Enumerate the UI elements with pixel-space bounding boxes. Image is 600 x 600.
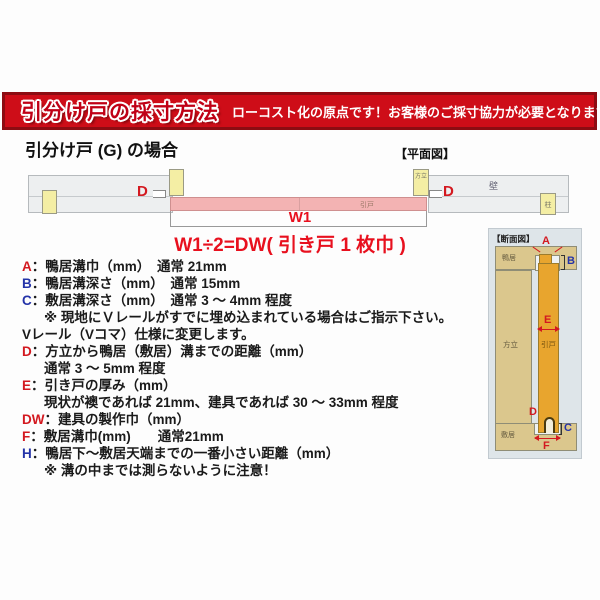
w1-dimension-line [170, 226, 427, 227]
left-end-post [42, 190, 57, 214]
measure-row: 通常 3 ～ 5mm 程度 [22, 360, 492, 377]
measure-text: ：敷居溝深さ（mm） 通常 3 ～ 4mm 程度 [32, 293, 292, 308]
measure-key: B [22, 276, 32, 291]
measure-text: ※ 溝の中までは測らないように注意！ [44, 463, 277, 478]
measure-text: 通常 3 ～ 5mm 程度 [44, 361, 166, 376]
hodate-column [495, 270, 532, 430]
measure-key: C [22, 293, 32, 308]
measure-row: C：敷居溝深さ（mm） 通常 3 ～ 4mm 程度 [22, 292, 492, 309]
right-pillar-post: 柱 [540, 193, 556, 215]
measure-key: E [22, 378, 31, 393]
banner-title: 引分け戸の採寸方法 [21, 96, 219, 126]
w1-formula: W1÷2=DW( 引き戸 1 枚巾 ) [120, 230, 460, 257]
page-subtitle: 引分け戸 (G) の場合 [25, 136, 178, 161]
measure-text: ：鴨居下～敷居天端までの一番小さい距離（mm） [32, 446, 340, 461]
b-dimension-label: B [567, 256, 575, 267]
d-dimension-label-right: D [443, 184, 454, 199]
d-dimension-label-left: D [137, 184, 148, 199]
measure-row: F：敷居溝巾(mm) 通常21mm [22, 428, 492, 445]
w1-tick-right [426, 211, 427, 227]
a-dimension-label: A [542, 236, 550, 247]
measure-key: A [22, 259, 32, 274]
kamoi-label: 鴨居 [502, 253, 516, 263]
measure-row: E：引き戸の厚み（mm） [22, 377, 492, 394]
measure-list: A：鴨居溝巾（mm） 通常 21mmB：鴨居溝深さ（mm） 通常 15mmC：敷… [22, 258, 492, 479]
measure-key: H [22, 446, 32, 461]
f-dimension-label: F [543, 441, 550, 452]
d-gap-bracket-right [429, 190, 442, 198]
measure-row: Vレール（Vコマ）仕様に変更します。 [22, 326, 492, 343]
c-dimension-label: C [564, 423, 572, 434]
measure-row: D：方立から鴨居（敷居）溝までの距離（mm） [22, 343, 492, 360]
f-width-arrow [535, 438, 560, 439]
d-gap-bracket-left [153, 190, 166, 198]
measure-text: ：建具の製作巾（mm） [45, 412, 191, 427]
measure-text: ：鴨居溝深さ（mm） 通常 15mm [32, 276, 241, 291]
measure-row: A：鴨居溝巾（mm） 通常 21mm [22, 258, 492, 275]
d-dimension-label-section: D [529, 407, 537, 418]
measure-text: ：敷居溝巾(mm) 通常21mm [30, 429, 224, 444]
shikii-label: 敷居 [501, 430, 515, 440]
measure-row: 現状が襖であれば 21mm、建具であれば 30 ～ 33mm 程度 [22, 394, 492, 411]
measure-row: H：鴨居下～敷居天端までの一番小さい距離（mm） [22, 445, 492, 462]
plan-view-caption: 【平面図】 [395, 145, 455, 162]
measure-key: D [22, 344, 32, 359]
e-width-arrow [538, 329, 559, 330]
right-hodate-post: 方立 [413, 169, 429, 196]
measure-row: ※ 溝の中までは測らないように注意！ [22, 462, 492, 479]
measure-text: ※ 現地にＶレールがすでに埋め込まれている場合はご指示下さい。 [44, 310, 452, 325]
banner-message: ローコスト化の原点です！お客様のご採寸協力が必要となります！ [232, 102, 600, 121]
measure-text: ：引き戸の厚み（mm） [31, 378, 177, 393]
measure-key: DW [22, 412, 45, 427]
left-hodate-post [169, 169, 184, 196]
measure-row: ※ 現地にＶレールがすでに埋め込まれている場合はご指示下さい。 [22, 309, 492, 326]
measure-text: ：鴨居溝巾（mm） 通常 21mm [32, 259, 227, 274]
measure-row: DW：建具の製作巾（mm） [22, 411, 492, 428]
door-column-label: 引戸 [541, 339, 556, 350]
measure-text: ：方立から鴨居（敷居）溝までの距離（mm） [32, 344, 313, 359]
door-bottom-rail-notch [544, 417, 555, 433]
c-depth-bracket [559, 423, 562, 435]
b-depth-bracket [561, 255, 565, 270]
e-dimension-label: E [544, 315, 551, 326]
measure-key: F [22, 429, 30, 444]
header-banner: 引分け戸の採寸方法 ローコスト化の原点です！お客様のご採寸協力が必要となります！ [2, 92, 597, 130]
measure-row: B：鴨居溝深さ（mm） 通常 15mm [22, 275, 492, 292]
w1-label: W1 [270, 209, 330, 226]
w1-tick-left [170, 211, 171, 227]
measure-text: Vレール（Vコマ）仕様に変更します。 [22, 327, 255, 342]
section-view-caption: 【断面図】 [492, 233, 535, 245]
wall-label: 壁 [489, 179, 498, 192]
door-bar-label: 引戸 [360, 200, 374, 210]
measure-text: 現状が襖であれば 21mm、建具であれば 30 ～ 33mm 程度 [44, 395, 399, 410]
hodate-column-label: 方立 [503, 339, 518, 350]
section-view-panel: 【断面図】 鴨居 A B 方立 敷居 引戸 E D C F [488, 228, 582, 459]
